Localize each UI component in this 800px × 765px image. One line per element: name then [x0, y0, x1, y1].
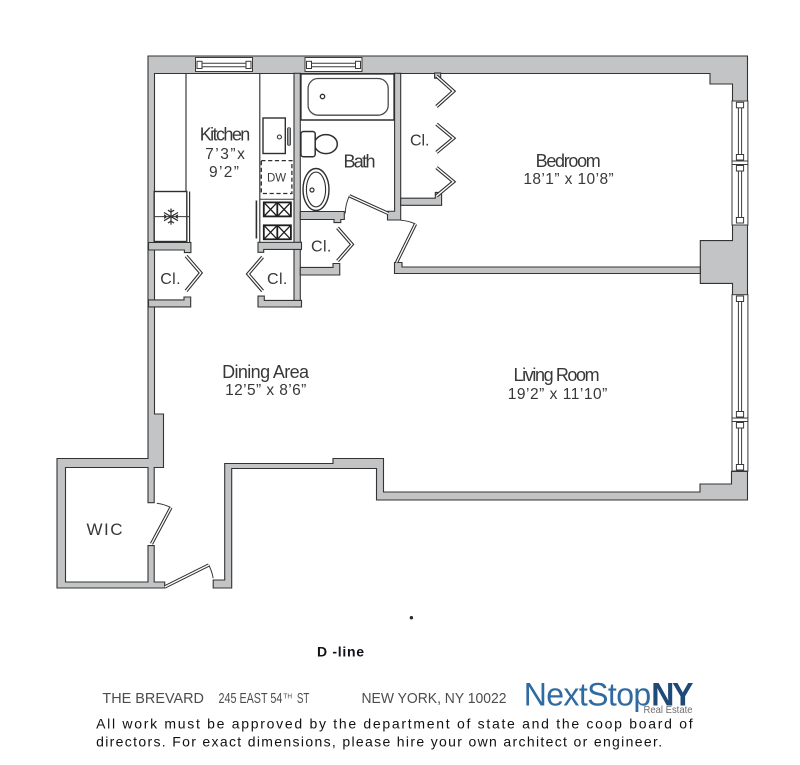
svg-text:245 EAST 54: 245 EAST 54 [219, 690, 283, 707]
svg-text:Dining Area: Dining Area [222, 362, 310, 382]
svg-text:19’2” x 11’10”: 19’2” x 11’10” [508, 386, 608, 403]
svg-text:TH: TH [283, 694, 292, 701]
svg-text:Bath: Bath [343, 151, 375, 171]
svg-text:Kitchen: Kitchen [200, 125, 251, 145]
svg-text:DW: DW [267, 173, 286, 185]
svg-text:ST: ST [297, 690, 310, 707]
svg-text:WIC: WIC [87, 520, 123, 539]
svg-text:Cl.: Cl. [267, 271, 287, 288]
svg-text:NEW YORK, NY 10022: NEW YORK, NY 10022 [362, 690, 507, 707]
svg-text:Cl.: Cl. [160, 271, 180, 288]
svg-text:Cl.: Cl. [410, 132, 429, 149]
svg-text:Bedroom: Bedroom [536, 151, 601, 171]
svg-text:12’5” x 8’6”: 12’5” x 8’6” [225, 382, 306, 399]
svg-text:Real Estate: Real Estate [644, 705, 693, 716]
svg-text:THE BREVARD: THE BREVARD [102, 690, 204, 707]
svg-text:9’2”: 9’2” [209, 164, 239, 181]
svg-text:NextStop: NextStop [524, 677, 652, 713]
svg-text:18’1” x 10’8”: 18’1” x 10’8” [523, 171, 613, 188]
svg-text:Living Room: Living Room [514, 365, 600, 385]
svg-text:Cl.: Cl. [311, 239, 331, 256]
svg-text:D -line: D -line [317, 644, 364, 660]
svg-text:7’3”x: 7’3”x [205, 146, 245, 163]
